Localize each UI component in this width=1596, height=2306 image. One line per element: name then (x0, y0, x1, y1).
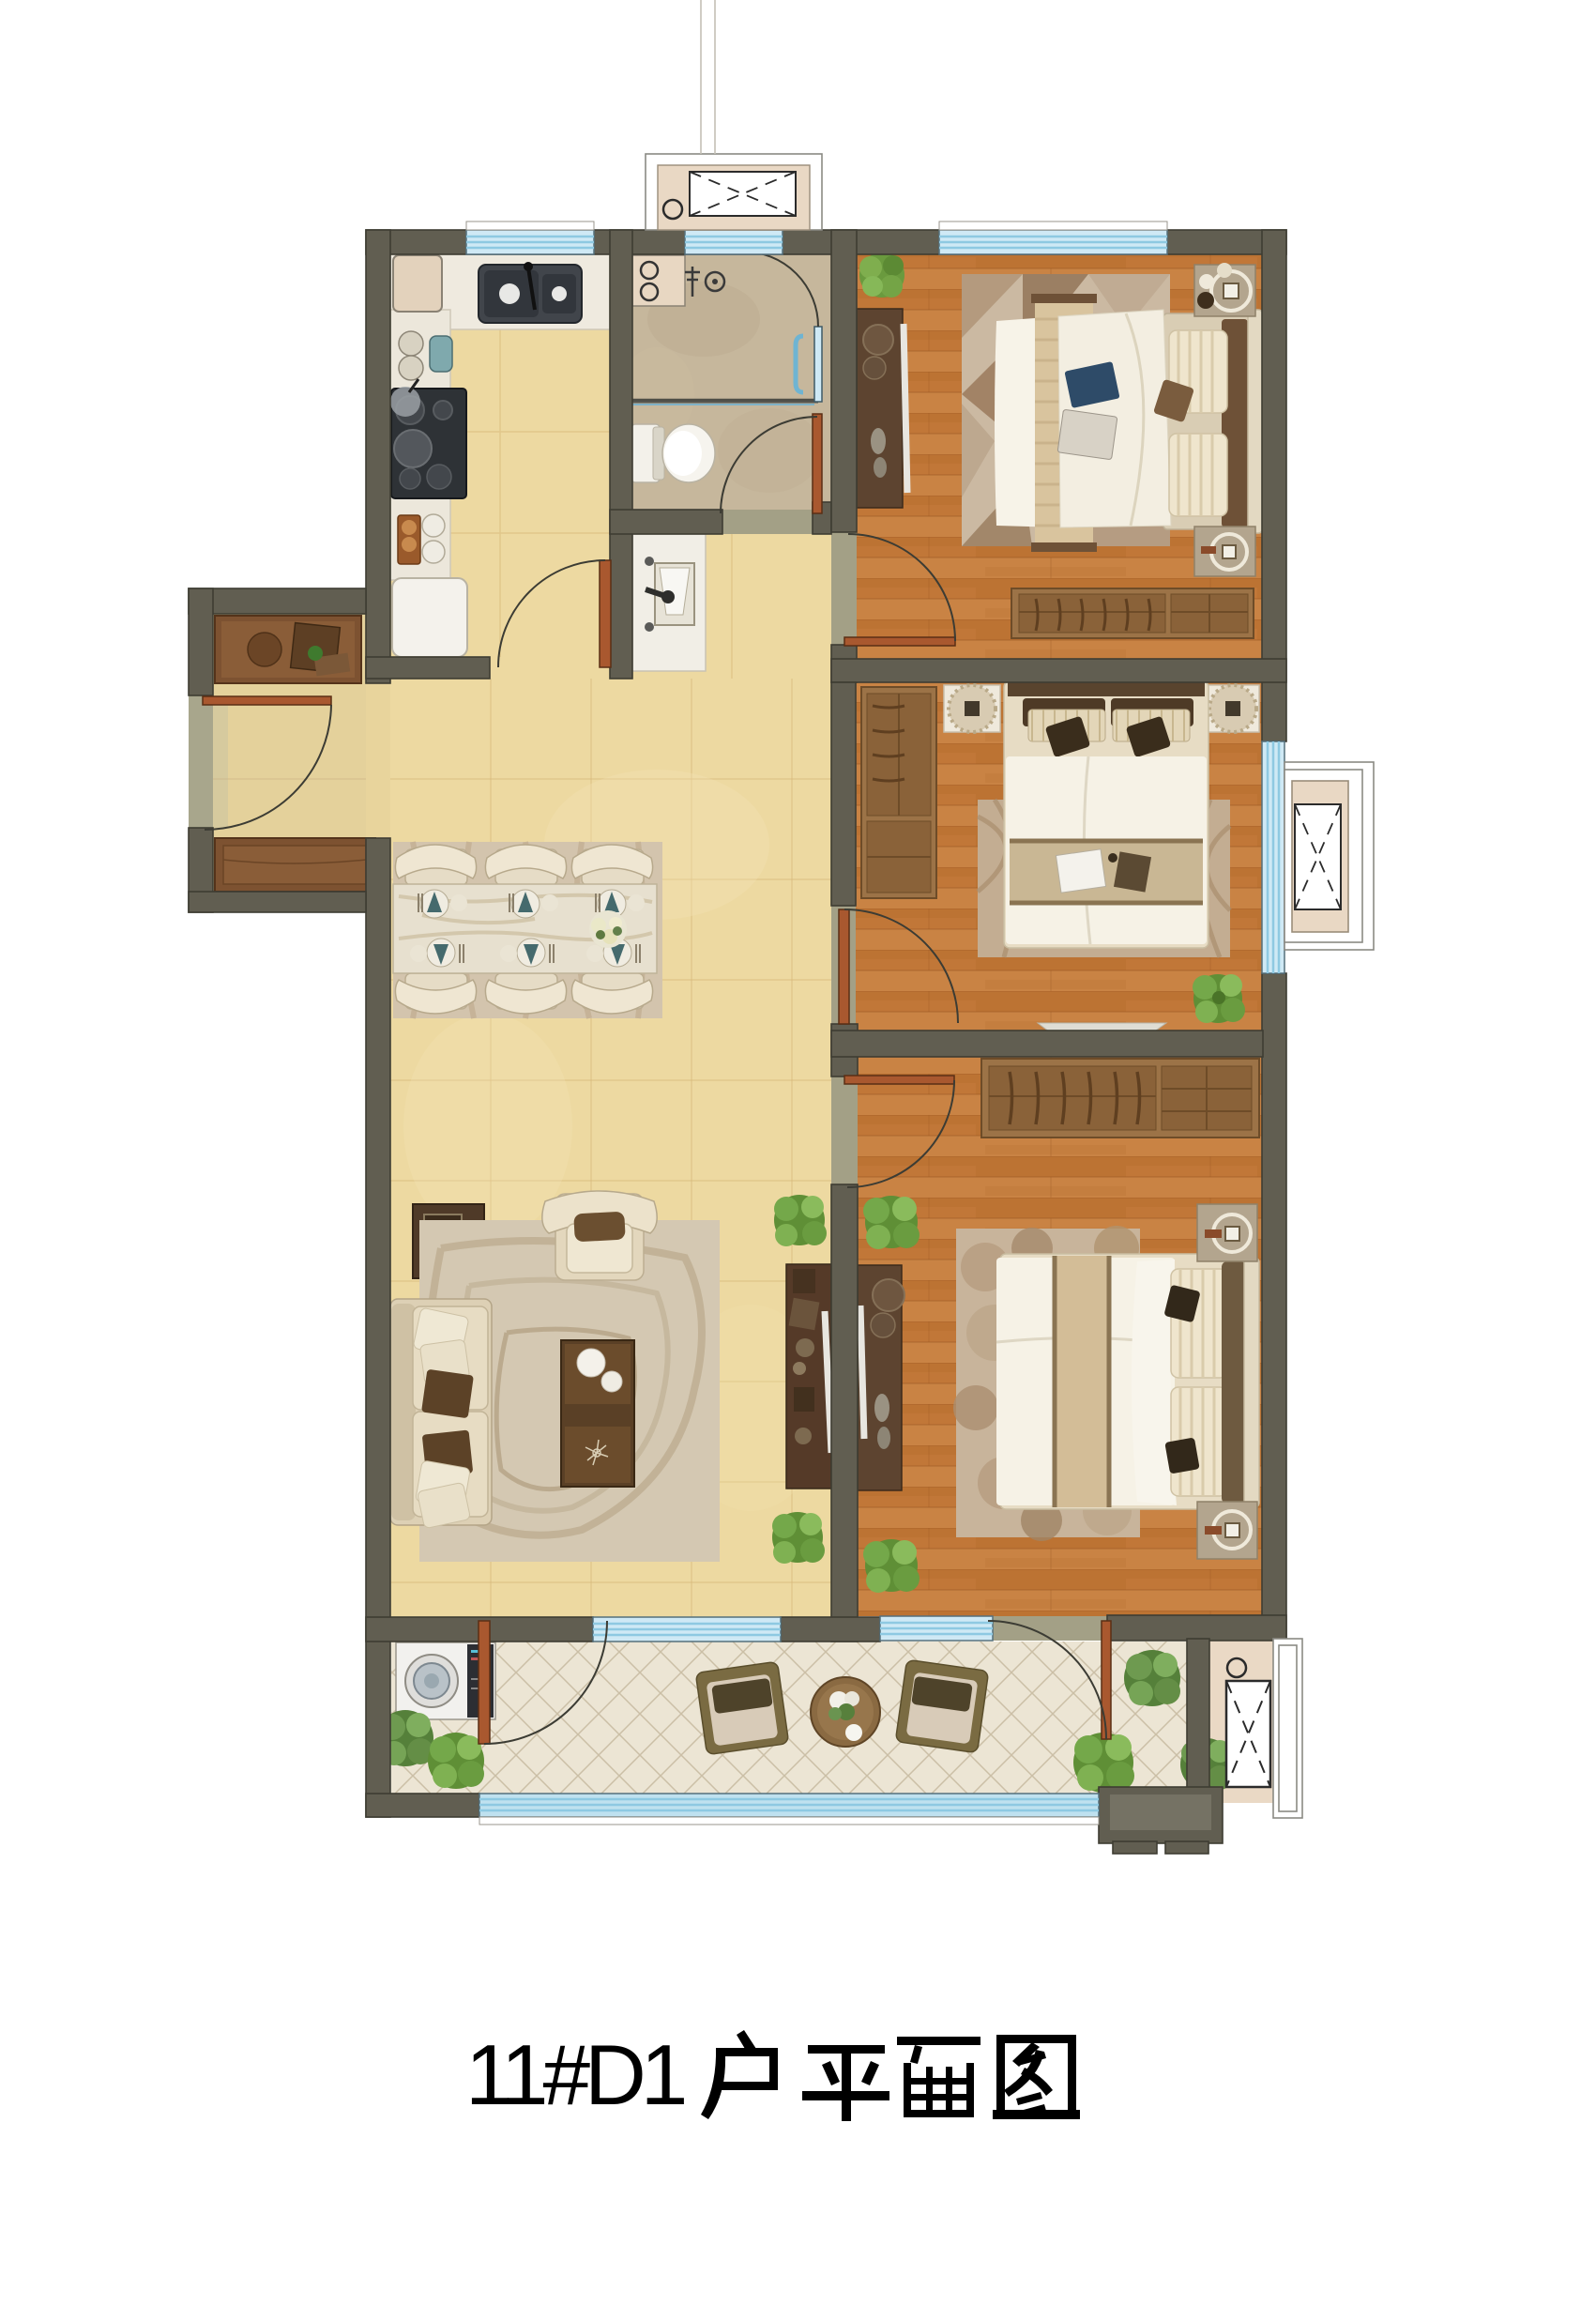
svg-text:11#D1: 11#D1 (465, 2028, 685, 2123)
